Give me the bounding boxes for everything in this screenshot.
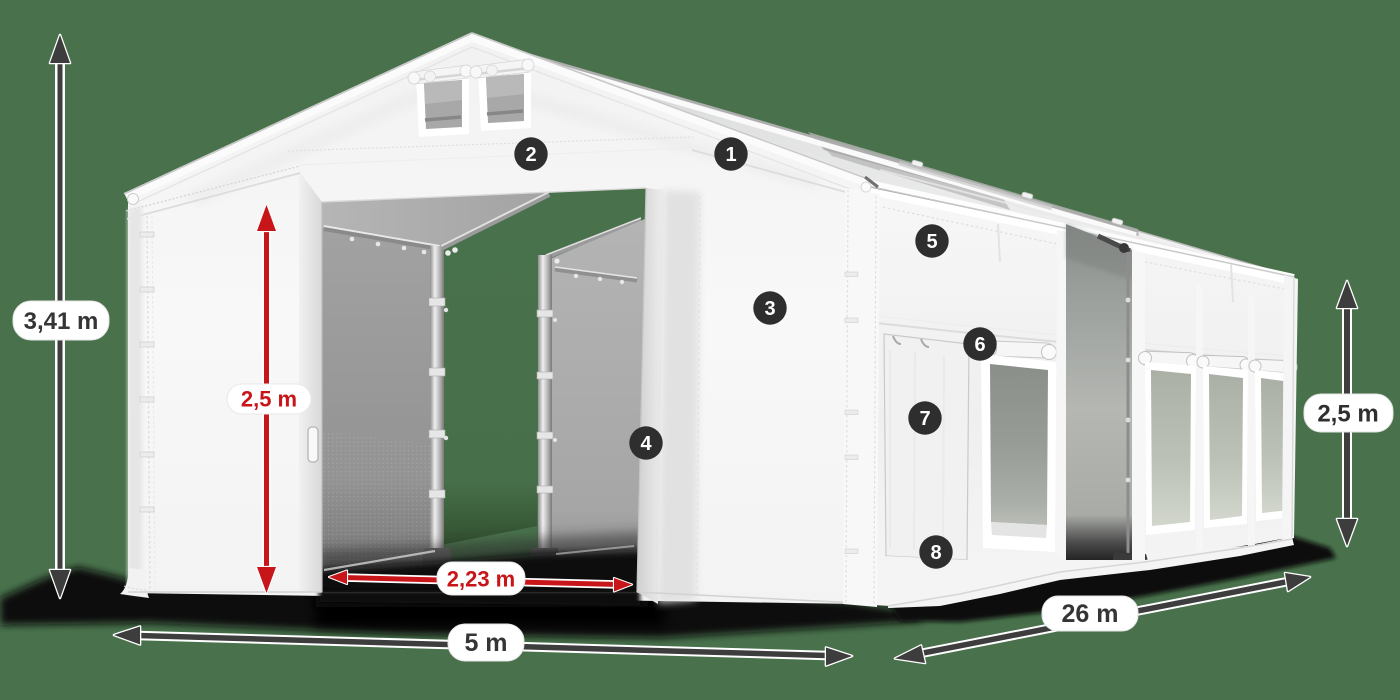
svg-text:3,41 m: 3,41 m bbox=[24, 308, 99, 335]
svg-text:7: 7 bbox=[919, 408, 930, 430]
svg-text:6: 6 bbox=[974, 334, 985, 356]
svg-text:2: 2 bbox=[525, 144, 536, 166]
svg-text:26 m: 26 m bbox=[1062, 600, 1119, 628]
svg-text:2,23 m: 2,23 m bbox=[447, 567, 516, 592]
svg-text:3: 3 bbox=[764, 298, 775, 320]
svg-text:1: 1 bbox=[725, 144, 736, 166]
svg-text:4: 4 bbox=[640, 433, 652, 455]
svg-text:5: 5 bbox=[926, 231, 937, 253]
svg-text:2,5 m: 2,5 m bbox=[241, 387, 297, 412]
svg-text:8: 8 bbox=[930, 542, 941, 564]
svg-text:5 m: 5 m bbox=[464, 629, 507, 657]
svg-text:2,5 m: 2,5 m bbox=[1317, 401, 1378, 428]
